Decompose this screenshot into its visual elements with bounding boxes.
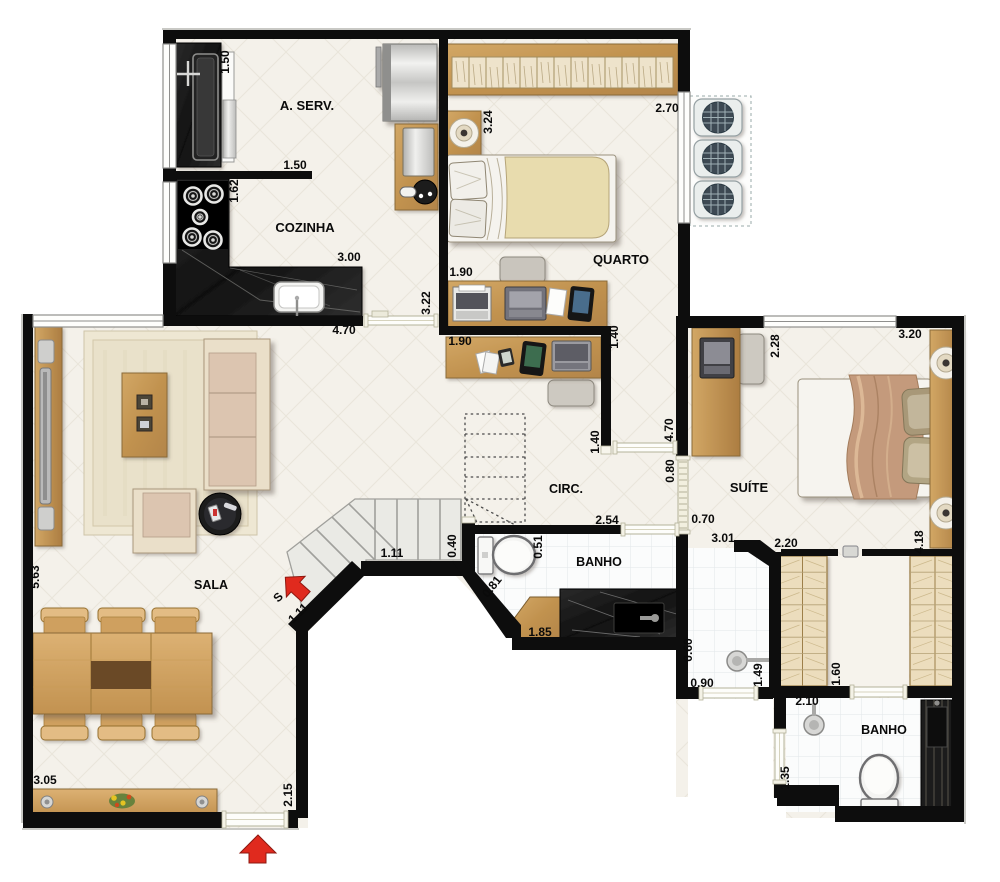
svg-text:QUARTO: QUARTO [593, 252, 649, 267]
svg-text:3.00: 3.00 [337, 250, 361, 264]
svg-text:1.35: 1.35 [778, 766, 792, 790]
svg-text:0.60: 0.60 [681, 638, 695, 662]
svg-text:2.15: 2.15 [281, 783, 295, 807]
svg-text:1.90: 1.90 [449, 265, 473, 279]
svg-text:2.10: 2.10 [795, 694, 819, 708]
svg-text:1.90: 1.90 [448, 334, 472, 348]
svg-text:1.60: 1.60 [829, 662, 843, 686]
svg-text:0.40: 0.40 [445, 534, 459, 558]
svg-text:3.24: 3.24 [481, 110, 495, 134]
svg-text:3.20: 3.20 [898, 327, 922, 341]
svg-text:3.05: 3.05 [33, 773, 57, 787]
svg-text:0.90: 0.90 [690, 676, 714, 690]
svg-text:4.18: 4.18 [912, 530, 926, 554]
svg-text:BANHO: BANHO [861, 723, 907, 737]
svg-text:1.62: 1.62 [227, 179, 241, 203]
svg-text:1.40: 1.40 [588, 430, 602, 454]
svg-text:0.70: 0.70 [691, 512, 715, 526]
svg-text:3.01: 3.01 [711, 531, 735, 545]
svg-text:4.70: 4.70 [662, 418, 676, 442]
svg-text:BANHO: BANHO [576, 555, 622, 569]
svg-text:2.54: 2.54 [595, 513, 619, 527]
svg-text:COZINHA: COZINHA [275, 220, 335, 235]
svg-text:CIRC.: CIRC. [549, 482, 583, 496]
svg-text:1.50: 1.50 [218, 50, 232, 74]
svg-text:5.63: 5.63 [28, 565, 42, 589]
svg-text:2.20: 2.20 [774, 536, 798, 550]
svg-text:0.80: 0.80 [663, 459, 677, 483]
svg-text:3.22: 3.22 [419, 291, 433, 315]
svg-text:1.50: 1.50 [283, 158, 307, 172]
svg-text:SALA: SALA [194, 578, 228, 592]
svg-text:0.51: 0.51 [531, 535, 545, 559]
svg-text:1.40: 1.40 [607, 325, 621, 349]
svg-text:1.49: 1.49 [751, 663, 765, 687]
svg-text:1.85: 1.85 [528, 625, 552, 639]
svg-text:4.70: 4.70 [332, 323, 356, 337]
svg-text:2.28: 2.28 [768, 334, 782, 358]
svg-text:A. SERV.: A. SERV. [280, 98, 334, 113]
svg-text:2.70: 2.70 [655, 101, 679, 115]
svg-text:1.11: 1.11 [381, 546, 404, 560]
svg-text:SUÍTE: SUÍTE [730, 480, 769, 495]
